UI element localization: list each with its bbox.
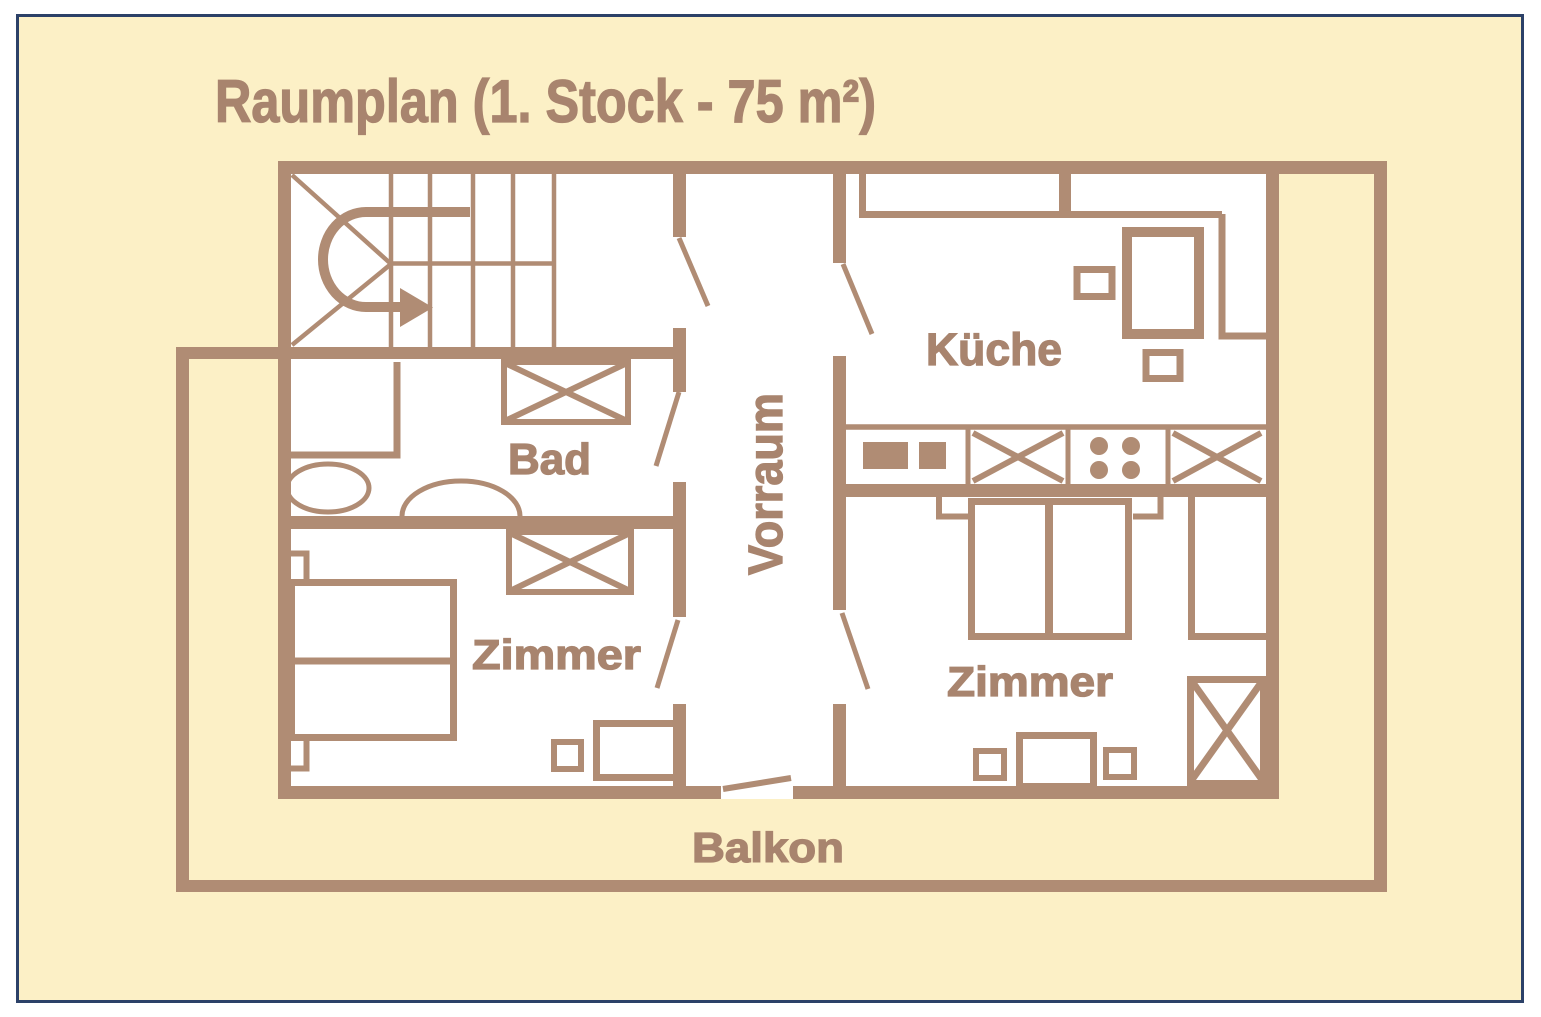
svg-text:Balkon: Balkon xyxy=(692,824,844,871)
svg-text:Zimmer: Zimmer xyxy=(472,631,641,678)
svg-text:Vorraum: Vorraum xyxy=(740,393,793,575)
svg-text:Zimmer: Zimmer xyxy=(947,658,1113,705)
svg-text:Bad: Bad xyxy=(508,435,591,484)
svg-text:Küche: Küche xyxy=(926,324,1062,375)
svg-text:Raumplan (1. Stock - 75 m²): Raumplan (1. Stock - 75 m²) xyxy=(215,68,876,135)
